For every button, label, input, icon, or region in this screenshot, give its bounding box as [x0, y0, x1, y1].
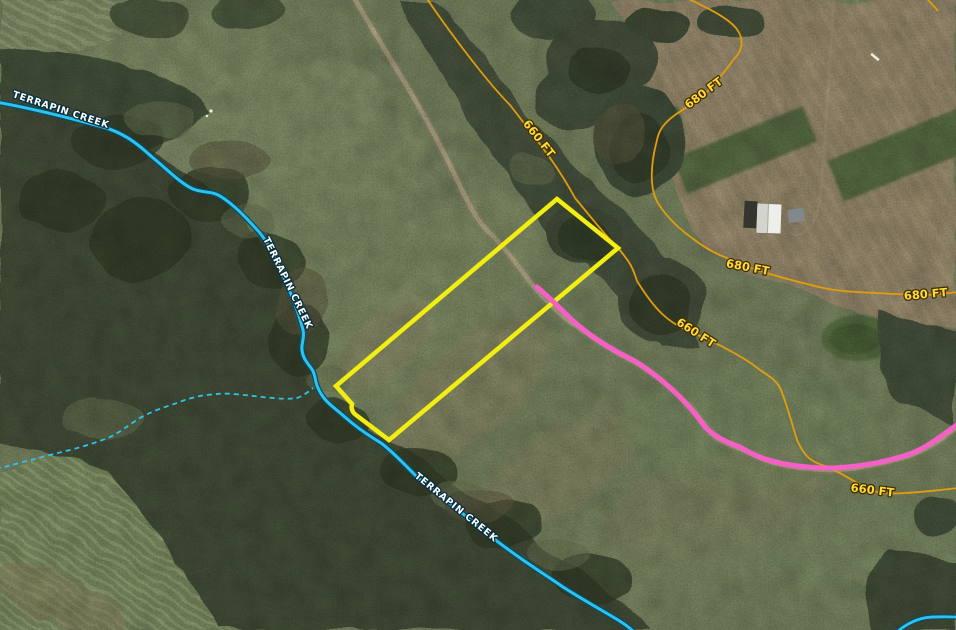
- trailer: [787, 208, 805, 223]
- terrain-texture: [0, 0, 956, 630]
- map-canvas[interactable]: TERRAPIN CREEK TERRAPIN CREEK TERRAPIN C…: [0, 0, 956, 630]
- satellite-map: TERRAPIN CREEK TERRAPIN CREEK TERRAPIN C…: [0, 0, 956, 630]
- white-speck: [209, 109, 212, 112]
- white-speck: [206, 115, 208, 117]
- shed-building: [743, 201, 757, 229]
- white-barn-building: [756, 204, 781, 234]
